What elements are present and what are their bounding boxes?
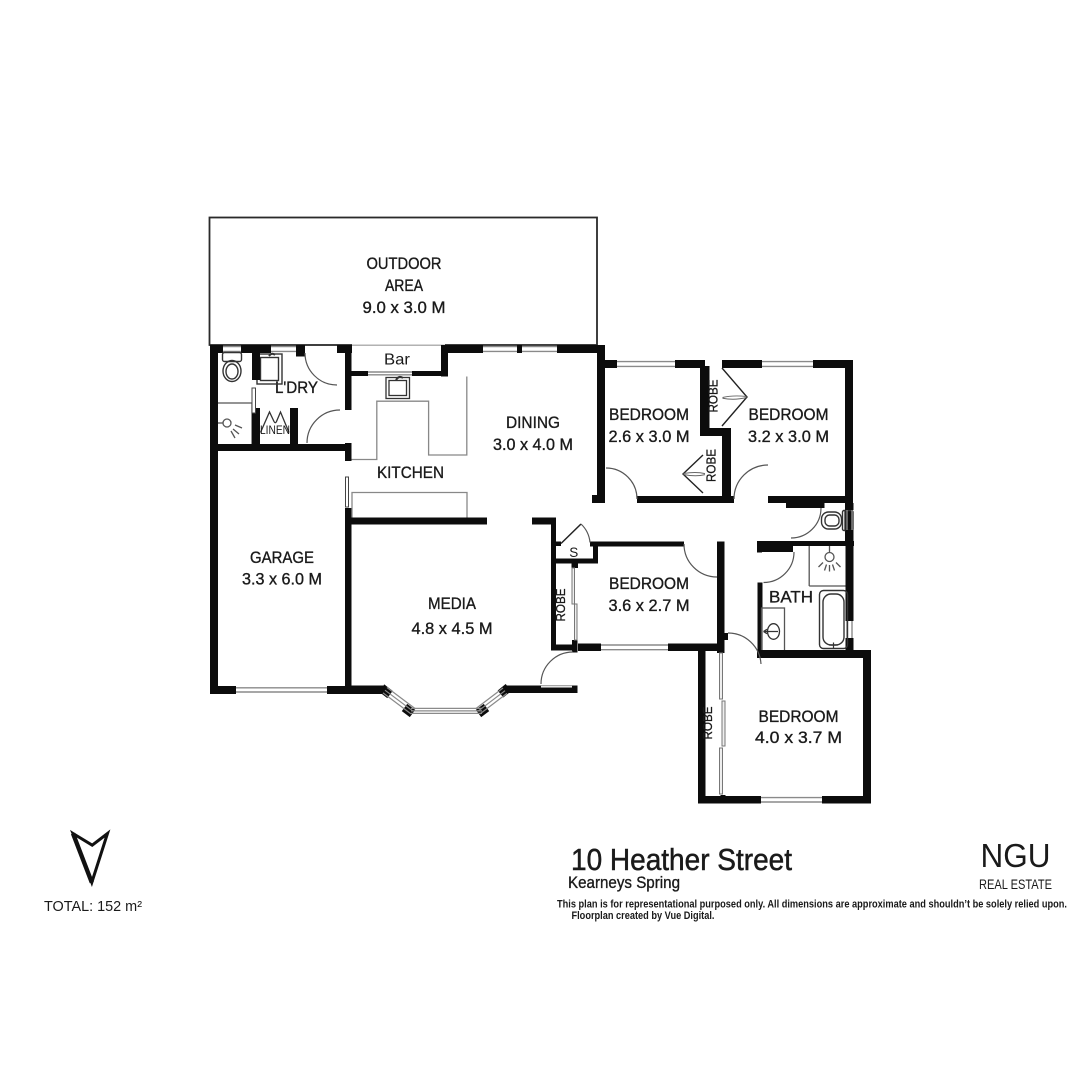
svg-text:9.0 x 3.0 M: 9.0 x 3.0 M xyxy=(363,298,446,317)
svg-text:2.6 x 3.0 M: 2.6 x 3.0 M xyxy=(609,427,690,446)
svg-text:BEDROOM: BEDROOM xyxy=(609,574,689,593)
svg-text:BATH: BATH xyxy=(769,588,813,607)
svg-text:4.0 x 3.7 M: 4.0 x 3.7 M xyxy=(755,728,842,747)
svg-text:10 Heather Street: 10 Heather Street xyxy=(571,843,792,877)
svg-text:TOTAL: 152 m²: TOTAL: 152 m² xyxy=(44,899,142,915)
svg-text:GARAGE: GARAGE xyxy=(250,548,314,567)
svg-text:BEDROOM: BEDROOM xyxy=(749,405,829,424)
svg-text:OUTDOOR: OUTDOOR xyxy=(367,254,442,273)
svg-text:Bar: Bar xyxy=(384,352,411,369)
svg-text:REAL ESTATE: REAL ESTATE xyxy=(979,877,1052,892)
svg-text:NGU: NGU xyxy=(981,837,1051,874)
svg-text:3.3 x 6.0 M: 3.3 x 6.0 M xyxy=(242,570,322,589)
svg-text:BEDROOM: BEDROOM xyxy=(759,707,839,726)
svg-text:KITCHEN: KITCHEN xyxy=(377,463,444,482)
svg-text:LINEN: LINEN xyxy=(260,423,290,437)
svg-text:DINING: DINING xyxy=(506,413,560,432)
svg-text:Kearneys Spring: Kearneys Spring xyxy=(568,873,680,892)
svg-text:S: S xyxy=(569,545,578,560)
svg-text:3.2 x 3.0 M: 3.2 x 3.0 M xyxy=(748,427,829,446)
svg-text:MEDIA: MEDIA xyxy=(428,594,477,613)
svg-text:4.8 x 4.5 M: 4.8 x 4.5 M xyxy=(412,619,493,638)
svg-text:ROBE: ROBE xyxy=(704,449,719,482)
svg-text:AREA: AREA xyxy=(385,276,424,295)
svg-text:3.0 x 4.0 M: 3.0 x 4.0 M xyxy=(493,435,573,454)
svg-text:ROBE: ROBE xyxy=(553,588,568,621)
svg-text:Floorplan created by Vue Digit: Floorplan created by Vue Digital. xyxy=(572,910,715,922)
svg-text:3.6 x 2.7 M: 3.6 x 2.7 M xyxy=(609,596,690,615)
svg-text:BEDROOM: BEDROOM xyxy=(609,405,689,424)
svg-text:This plan is for representatio: This plan is for representational purpos… xyxy=(557,899,1067,911)
svg-text:ROBE: ROBE xyxy=(706,379,721,412)
svg-text:ROBE: ROBE xyxy=(700,706,715,739)
